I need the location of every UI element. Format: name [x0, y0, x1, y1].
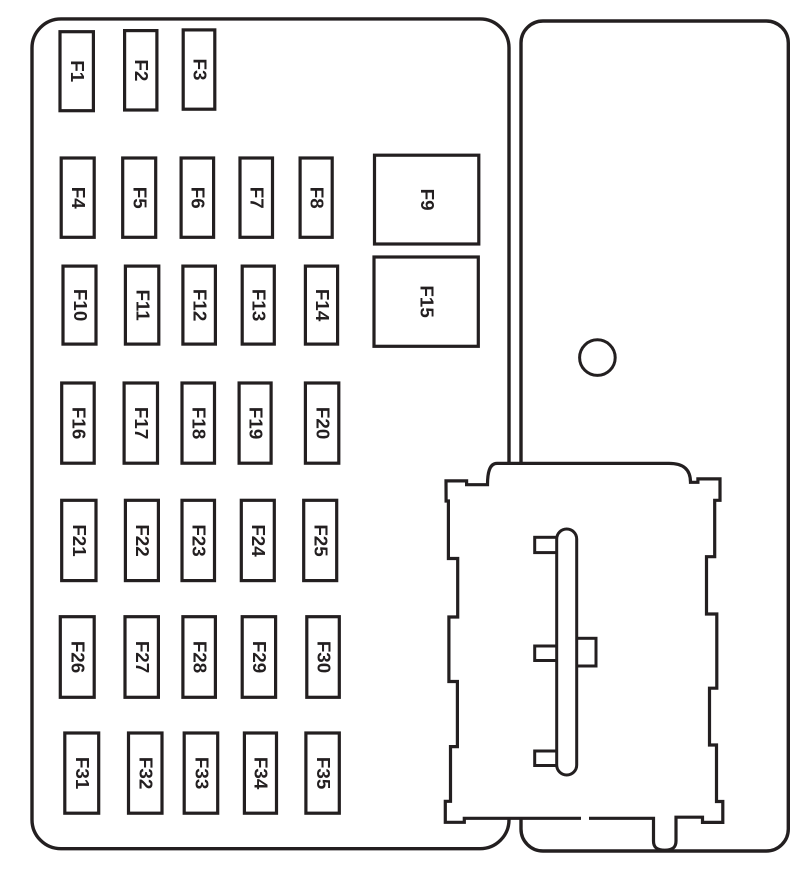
svg-text:F20: F20 — [312, 407, 333, 439]
svg-text:F14: F14 — [312, 289, 333, 322]
svg-text:F33: F33 — [191, 757, 212, 789]
svg-text:F27: F27 — [132, 641, 153, 673]
svg-text:F4: F4 — [68, 187, 89, 209]
svg-text:F9: F9 — [417, 189, 438, 211]
svg-text:F28: F28 — [190, 641, 211, 673]
svg-text:F31: F31 — [72, 757, 93, 789]
svg-text:F26: F26 — [68, 641, 89, 673]
svg-text:F32: F32 — [136, 757, 157, 789]
svg-text:F35: F35 — [313, 757, 334, 789]
svg-text:F29: F29 — [249, 641, 270, 673]
svg-text:F7: F7 — [247, 187, 268, 209]
svg-text:F5: F5 — [130, 187, 151, 209]
svg-text:F34: F34 — [251, 757, 272, 790]
svg-text:F30: F30 — [313, 641, 334, 673]
svg-text:F17: F17 — [131, 407, 152, 439]
svg-text:F23: F23 — [189, 524, 210, 556]
svg-text:F8: F8 — [307, 187, 328, 209]
svg-text:F18: F18 — [189, 407, 210, 439]
svg-text:F25: F25 — [311, 524, 332, 556]
svg-text:F24: F24 — [248, 524, 269, 557]
svg-text:F11: F11 — [132, 289, 153, 320]
svg-text:F13: F13 — [249, 289, 270, 321]
svg-text:F1: F1 — [67, 60, 88, 82]
svg-text:F10: F10 — [70, 289, 91, 321]
svg-text:F19: F19 — [245, 407, 266, 439]
svg-text:F15: F15 — [416, 285, 437, 317]
svg-text:F22: F22 — [132, 524, 153, 556]
svg-text:F12: F12 — [190, 289, 211, 321]
svg-text:F3: F3 — [189, 59, 210, 81]
svg-text:F2: F2 — [131, 59, 152, 81]
svg-text:F6: F6 — [188, 187, 209, 209]
svg-text:F21: F21 — [69, 524, 90, 556]
svg-text:F16: F16 — [68, 407, 89, 439]
